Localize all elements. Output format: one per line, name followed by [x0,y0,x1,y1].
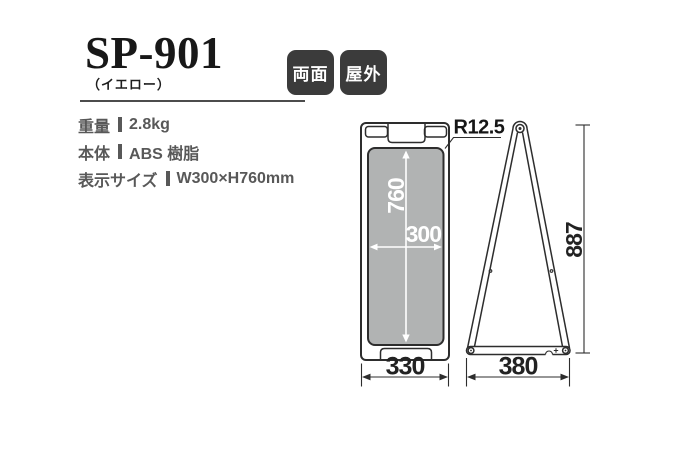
spec-label: 表示サイズ [78,167,158,191]
dim-label-display-height: 760 [383,178,409,214]
dim-label-overall-height: 887 [561,222,587,258]
handle-cap-left [366,127,388,138]
dim-label-display-width: 300 [406,221,442,247]
leg-hole [489,270,492,273]
dim-label-stance-depth: 380 [499,353,538,381]
radius-leader-line [445,138,501,149]
badge-double-sided: 両面 [287,50,334,95]
spec-separator-bar [118,117,122,132]
leg-right-inner [523,133,563,347]
radius-callout: R12.5 [454,117,505,139]
spec-separator-bar [166,171,170,186]
arrow-left-icon [467,374,476,381]
spec-row-display-size: 表示サイズ W300×H760mm [78,165,294,192]
spec-sheet-page: SP-901 （イエロー） 両面 屋外 重量 2.8kg 本体 ABS 樹脂 表… [0,0,682,450]
side-view: 887 380 [467,122,591,387]
leg-left-inner [475,133,518,347]
handle-cap-right [425,127,447,138]
technical-drawing: 760 300 330 R12.5 [340,95,620,405]
bar-notch-gap [546,353,553,356]
arrow-right-icon [561,374,570,381]
spec-row-weight: 重量 2.8kg [78,111,294,138]
spec-label: 本体 [78,140,110,164]
badge-outdoor: 屋外 [340,50,387,95]
arrow-right-icon [440,374,449,381]
spec-value: ABS 樹脂 [129,140,199,164]
spec-value: 2.8kg [129,116,170,134]
dim-label-base-width: 330 [386,353,425,381]
foot-bolt-left-center [470,350,472,352]
product-color-note: （イエロー） [87,74,171,93]
arrow-left-icon [362,374,371,381]
spec-value: W300×H760mm [177,170,295,188]
foot-bolt-right-center [565,350,567,352]
spec-label: 重量 [78,113,110,137]
title-divider [80,100,305,102]
spec-separator-bar [118,144,122,159]
hinge-bolt-center [519,127,522,130]
spec-list: 重量 2.8kg 本体 ABS 樹脂 表示サイズ W300×H760mm [78,111,294,192]
feature-badges: 両面 屋外 [287,50,387,95]
leg-left-outer [468,129,514,349]
spec-row-body-material: 本体 ABS 樹脂 [78,138,294,165]
leg-hole [550,270,553,273]
page-title: SP-901 [85,31,223,76]
